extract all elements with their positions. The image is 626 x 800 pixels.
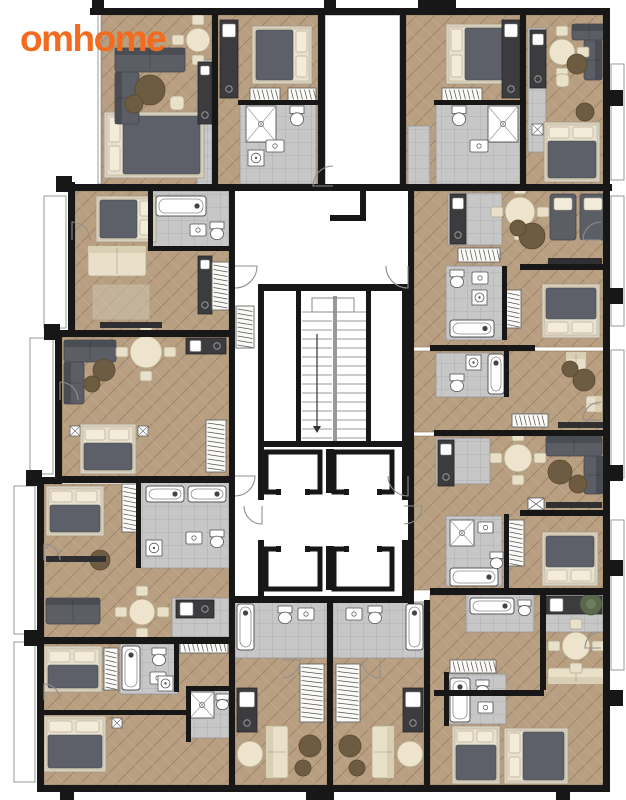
dining-table: [397, 741, 423, 767]
kitchen-counter: [502, 20, 520, 98]
bed: [96, 196, 156, 242]
elevator: [334, 546, 392, 589]
kitchen-counter: [237, 688, 257, 732]
pouf-round: [576, 103, 594, 121]
nightstand: [70, 426, 80, 436]
sofa: [546, 436, 602, 456]
bathtub: [450, 320, 494, 337]
bed: [44, 716, 106, 772]
bathtub: [488, 354, 504, 394]
bathtub: [406, 604, 423, 650]
toilet: [450, 270, 464, 288]
kitchen-counter: [220, 20, 238, 98]
bathtub: [450, 678, 470, 722]
sofa: [586, 396, 602, 412]
sink: [346, 608, 362, 620]
bathtub: [188, 486, 226, 502]
kitchen-counter: [186, 338, 226, 354]
wardrobe: [212, 262, 229, 310]
shower: [450, 520, 474, 546]
bathtub: [156, 196, 206, 216]
toilet: [368, 606, 382, 624]
tv-console: [528, 498, 544, 510]
bathtub: [122, 646, 140, 690]
staircase: [301, 291, 366, 442]
daybed: [550, 194, 576, 240]
toilet: [210, 530, 224, 548]
toilet: [452, 106, 466, 126]
nightstand: [532, 124, 543, 135]
sofa: [584, 456, 603, 494]
sofa: [572, 24, 606, 40]
floor-plan: [0, 0, 626, 800]
bed: [542, 532, 598, 586]
nightstand: [138, 426, 148, 436]
kitchen-counter: [530, 30, 546, 88]
toilet: [216, 694, 229, 710]
bed: [452, 726, 500, 784]
pouf-round: [510, 220, 526, 236]
toilet: [278, 606, 292, 624]
sofa: [584, 40, 602, 80]
dining-table: [237, 741, 263, 767]
sink: [470, 140, 488, 152]
wardrobe: [300, 664, 324, 722]
elevator: [334, 452, 392, 495]
kitchen-counter: [403, 688, 423, 732]
bed: [504, 728, 568, 784]
bed: [80, 424, 136, 474]
pouf-round: [569, 475, 587, 493]
bed: [446, 24, 508, 84]
bed: [44, 646, 102, 692]
kitchen-counter: [450, 194, 466, 244]
pouf-round: [84, 376, 100, 392]
shower: [246, 106, 276, 142]
bed: [544, 122, 600, 182]
pouf-round: [125, 95, 143, 113]
wardrobe: [206, 420, 226, 472]
pouf-round: [299, 735, 321, 757]
toilet: [490, 552, 503, 569]
sink: [472, 272, 488, 284]
toilet: [518, 600, 531, 616]
pouf-round: [548, 460, 572, 484]
pouf-round: [295, 760, 311, 776]
wardrobe: [508, 520, 524, 566]
toilet: [450, 374, 464, 392]
toilet: [210, 222, 224, 240]
pouf-round: [562, 361, 578, 377]
pouf-round: [339, 735, 361, 757]
washing-machine: [472, 290, 487, 305]
bed: [542, 284, 600, 338]
nightstand: [112, 718, 122, 728]
pouf-round: [567, 54, 587, 74]
sofa: [88, 246, 146, 276]
wardrobe: [104, 648, 118, 690]
wardrobe: [450, 660, 496, 673]
bed: [46, 486, 104, 536]
wardrobe: [236, 306, 254, 348]
bathtub: [237, 604, 254, 650]
shower: [190, 692, 214, 718]
elevator: [266, 452, 320, 495]
toilet: [290, 106, 304, 126]
washing-machine: [466, 355, 481, 370]
bed: [252, 26, 312, 84]
wardrobe: [458, 248, 500, 262]
wardrobe: [512, 414, 548, 427]
sofa: [266, 726, 288, 778]
floor-plan-page: omhome: [0, 0, 626, 800]
kitchen-counter: [198, 62, 212, 124]
kitchen-counter: [176, 600, 214, 618]
bathtub: [450, 568, 498, 586]
sink: [478, 522, 493, 533]
bathtub: [470, 598, 514, 614]
washing-machine: [146, 540, 162, 556]
sink: [478, 702, 493, 713]
sink: [298, 608, 314, 620]
elevator: [266, 546, 320, 589]
wardrobe: [288, 88, 316, 101]
kitchen-counter: [438, 440, 454, 486]
plant: [580, 593, 602, 615]
sink: [186, 532, 202, 544]
sink: [266, 140, 284, 152]
sofa: [372, 726, 394, 778]
wardrobe: [336, 664, 360, 722]
sofa: [64, 340, 116, 362]
shower: [488, 106, 518, 142]
toilet: [152, 648, 166, 666]
bathtub: [146, 486, 184, 502]
wardrobe: [122, 484, 138, 532]
washing-machine: [248, 150, 264, 166]
omhome-logo: omhome: [20, 18, 165, 60]
pouf-round: [349, 760, 365, 776]
sofa: [46, 598, 100, 624]
kitchen-counter: [198, 256, 212, 314]
washing-machine: [158, 676, 173, 691]
sink: [190, 224, 206, 236]
wardrobe: [250, 88, 280, 101]
wardrobe: [442, 88, 482, 101]
wardrobe: [506, 290, 521, 328]
